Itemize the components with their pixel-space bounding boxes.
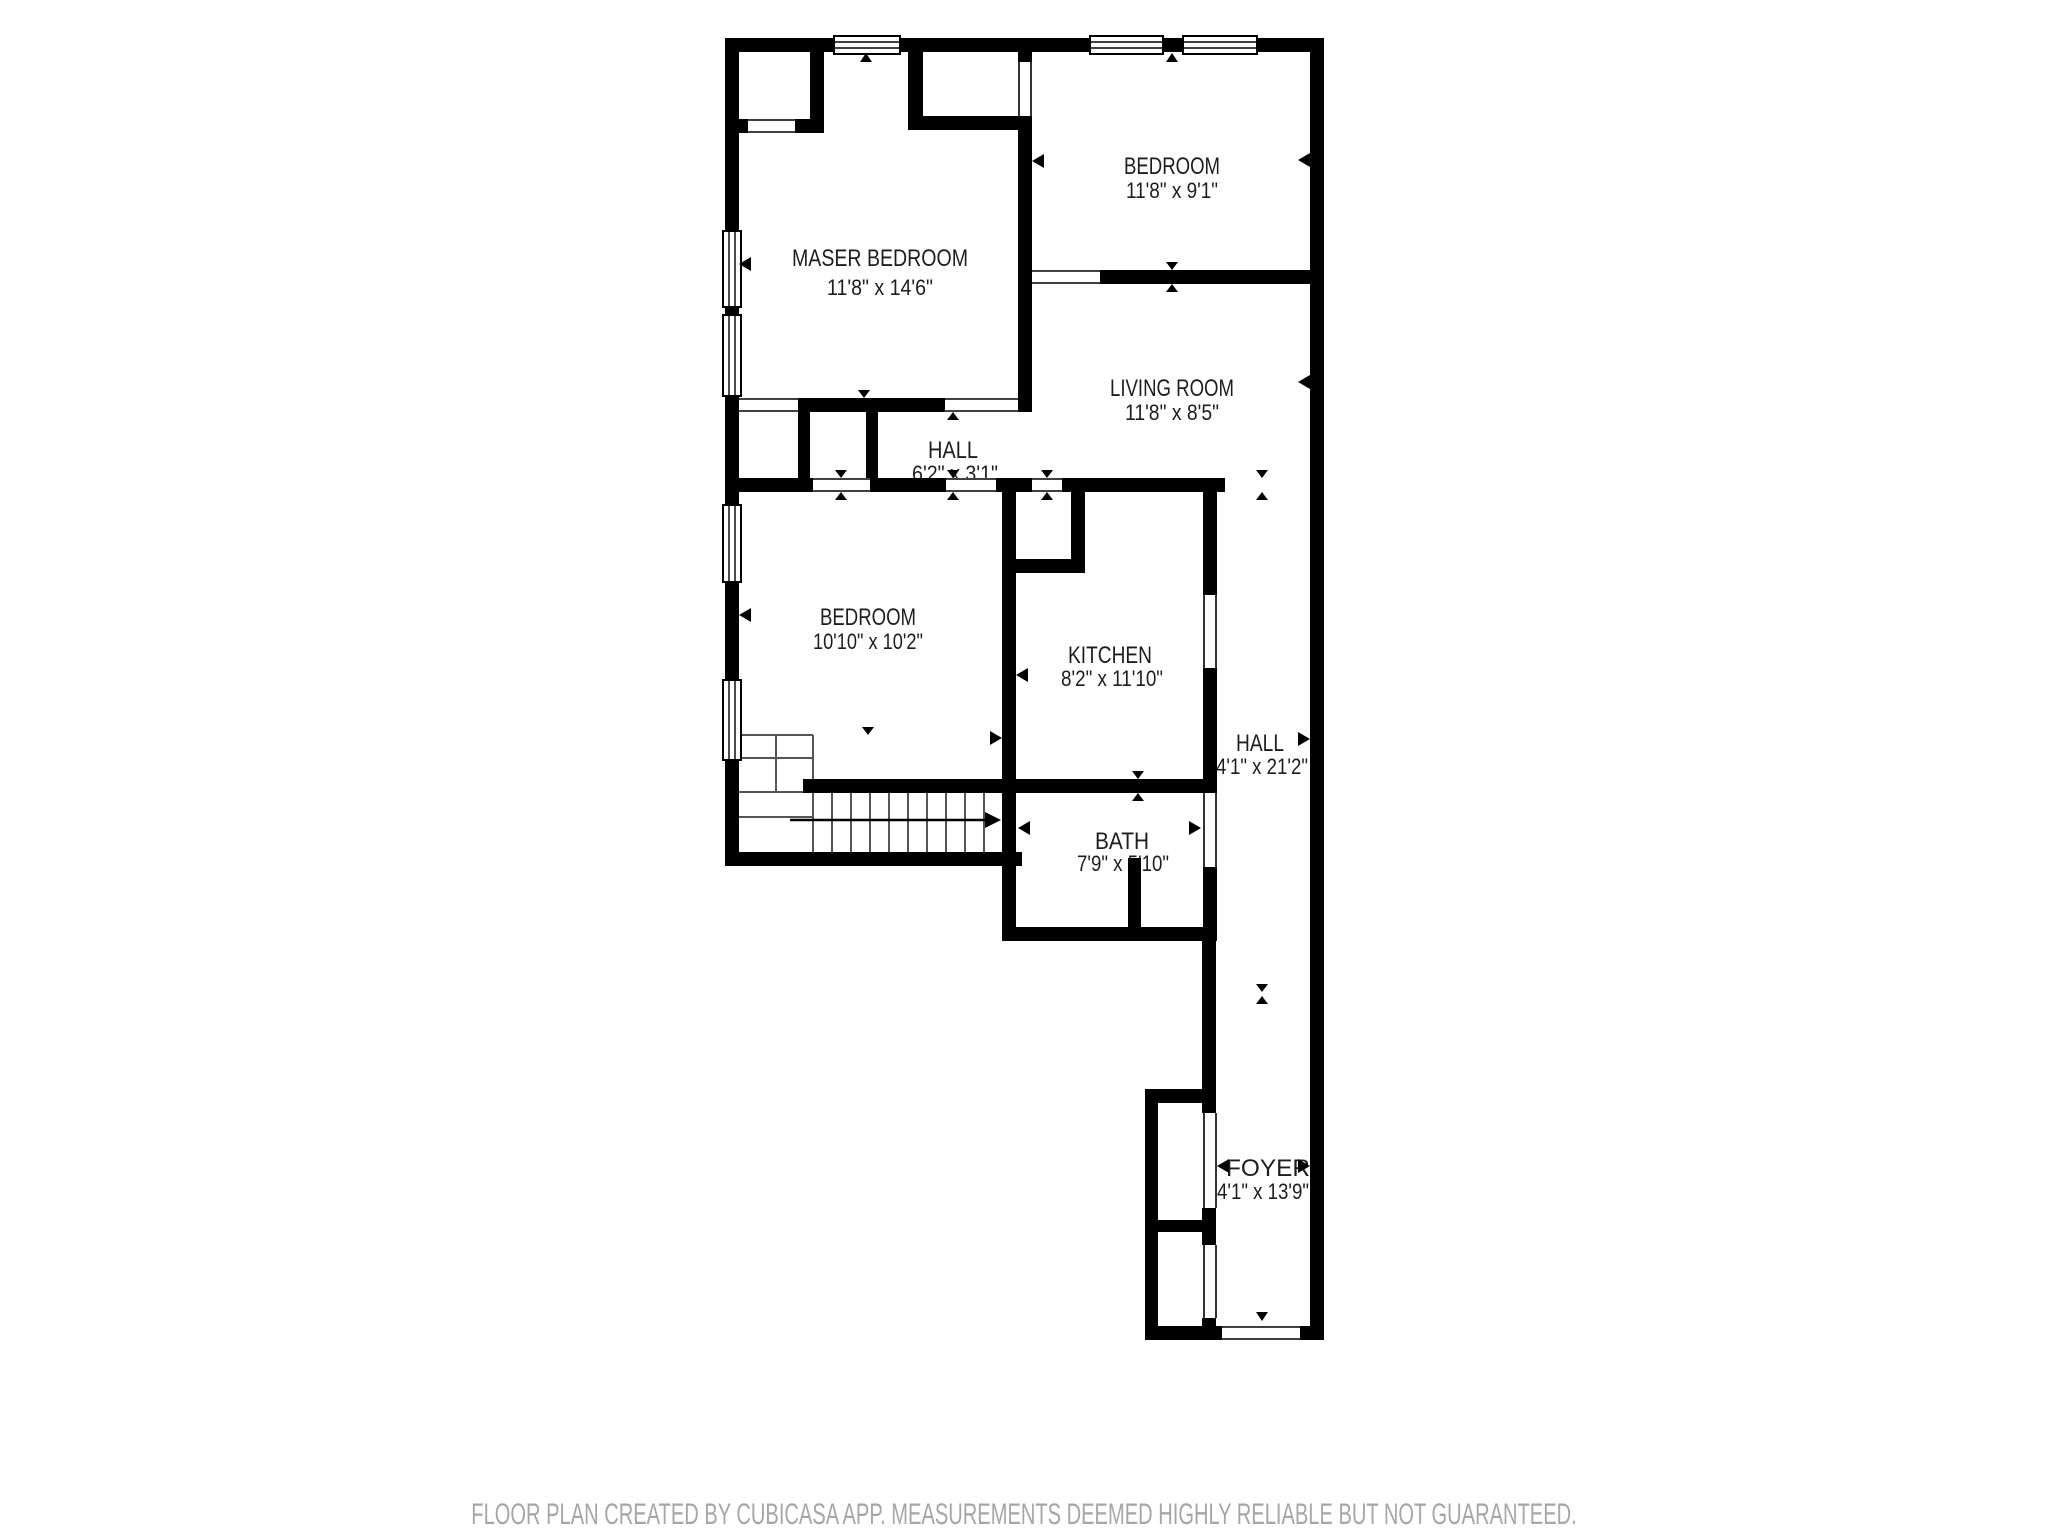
triangle-marker-icon — [1032, 154, 1044, 168]
wall-segment — [810, 38, 824, 133]
door-opening — [1222, 1326, 1300, 1340]
wall-segment — [1300, 1326, 1324, 1340]
room-name-label: LIVING ROOM — [1110, 375, 1234, 402]
room-name-label: BEDROOM — [820, 604, 916, 631]
wall-segment — [725, 38, 739, 231]
wall-segment — [1018, 52, 1032, 62]
door-opening — [1203, 1245, 1217, 1318]
wall-segment — [798, 412, 810, 478]
door-opening — [946, 478, 996, 492]
room-name-label: BEDROOM — [1124, 153, 1220, 180]
stairs — [739, 735, 1001, 852]
door-opening — [1032, 478, 1062, 492]
triangle-marker-icon — [947, 492, 959, 500]
triangle-marker-icon — [1256, 1312, 1268, 1321]
room-name-label: HALL — [928, 437, 978, 464]
triangle-marker-icon — [1256, 984, 1268, 992]
stairs-arrow-head-icon — [985, 812, 1001, 828]
door-opening — [1203, 793, 1217, 867]
wall-segment — [1062, 478, 1225, 492]
door-opening — [1018, 62, 1032, 116]
wall-segment — [1203, 492, 1217, 595]
wall-segment — [725, 760, 739, 866]
triangle-marker-icon — [1256, 470, 1268, 478]
window-symbol — [723, 231, 741, 307]
wall-segment — [1202, 1103, 1216, 1113]
triangle-marker-icon — [1132, 771, 1144, 779]
door-opening — [739, 398, 798, 412]
triangle-marker-icon — [990, 731, 1002, 745]
wall-segment — [900, 38, 1090, 52]
triangle-marker-icon — [1256, 996, 1268, 1004]
triangle-marker-icon — [1132, 793, 1144, 801]
room-name-label: HALL — [1236, 730, 1284, 757]
wall-segment — [1002, 927, 1216, 941]
triangle-marker-icon — [862, 727, 874, 735]
wall-segment — [908, 116, 1032, 130]
room-dimensions-label: 10'10" x 10'2" — [813, 629, 923, 654]
floor-plan: MASER BEDROOM11'8" x 14'6"BEDROOM11'8" x… — [0, 0, 2048, 1536]
wall-segment — [1202, 1318, 1216, 1326]
window-symbol — [834, 36, 900, 54]
footer-disclaimer: FLOOR PLAN CREATED BY CUBICASA APP. MEAS… — [338, 1498, 1710, 1532]
room-name-label: MASER BEDROOM — [792, 245, 968, 272]
window-symbol — [1090, 36, 1163, 54]
wall-segment — [1310, 38, 1324, 1340]
wall-segment — [1145, 1089, 1158, 1340]
room-dimensions-label: 11'8" x 9'1" — [1126, 178, 1218, 203]
triangle-marker-icon — [1256, 492, 1268, 500]
wall-segment — [725, 852, 1022, 866]
triangle-marker-icon — [739, 608, 751, 622]
window-symbol — [723, 680, 741, 760]
room-dimensions-label: 7'9" x 5'10" — [1077, 851, 1169, 876]
wall-segment — [1203, 867, 1217, 941]
room-dimensions-label: 11'8" x 8'5" — [1125, 400, 1219, 425]
walls — [725, 38, 1324, 1340]
wall-segment — [1163, 38, 1183, 52]
wall-segment — [866, 412, 878, 478]
triangle-marker-icon — [947, 412, 959, 420]
wall-segment — [1100, 270, 1324, 284]
wall-segment — [1128, 858, 1141, 927]
triangle-marker-icon — [1298, 153, 1310, 167]
wall-segment — [1145, 1326, 1222, 1340]
door-opening — [813, 478, 870, 492]
room-dimensions-label: 4'1" x 21'2" — [1216, 754, 1308, 779]
triangle-marker-icon — [1041, 492, 1053, 500]
door-opening — [945, 398, 1018, 412]
wall-segment — [1016, 559, 1085, 573]
wall-segment — [1202, 941, 1216, 1103]
wall-segment — [996, 478, 1032, 492]
triangle-marker-icon — [1018, 821, 1030, 835]
wall-segment — [870, 478, 946, 492]
room-dimensions-label: 8'2" x 11'10" — [1061, 666, 1163, 691]
wall-segment — [803, 779, 1216, 793]
wall-segment — [1002, 482, 1016, 941]
window-symbol — [723, 505, 741, 582]
floor-plan-page: MASER BEDROOM11'8" x 14'6"BEDROOM11'8" x… — [0, 0, 2048, 1536]
wall-segment — [739, 119, 748, 133]
window-symbol — [1183, 36, 1257, 54]
triangle-marker-icon — [1298, 732, 1310, 746]
room-name-label: FOYER — [1226, 1155, 1310, 1182]
triangle-marker-icon — [1166, 262, 1178, 270]
wall-segment — [725, 307, 739, 315]
wall-segment — [1158, 1220, 1216, 1232]
room-dimensions-label: 11'8" x 14'6" — [827, 275, 933, 300]
triangle-marker-icon — [1166, 53, 1178, 62]
triangle-marker-icon — [1217, 1159, 1229, 1173]
triangle-marker-icon — [835, 470, 847, 478]
wall-segment — [725, 582, 739, 680]
triangle-marker-icon — [1189, 821, 1201, 835]
wall-segment — [725, 478, 813, 492]
room-name-label: KITCHEN — [1068, 642, 1152, 669]
room-dimensions-label: 4'1" x 13'9" — [1217, 1179, 1309, 1204]
triangle-marker-icon — [858, 390, 870, 398]
room-labels: MASER BEDROOM11'8" x 14'6"BEDROOM11'8" x… — [792, 153, 1310, 1204]
window-symbol — [723, 315, 741, 396]
triangle-marker-icon — [835, 492, 847, 500]
wall-segment — [798, 398, 945, 412]
triangle-marker-icon — [1298, 375, 1310, 389]
door-opening — [1203, 595, 1217, 668]
triangle-marker-icon — [1166, 284, 1178, 292]
triangle-marker-icon — [1016, 668, 1028, 682]
wall-segment — [795, 119, 824, 133]
door-opening — [1203, 1113, 1217, 1208]
door-opening — [748, 119, 795, 133]
triangle-marker-icon — [1041, 470, 1053, 478]
door-opening — [1032, 270, 1100, 284]
